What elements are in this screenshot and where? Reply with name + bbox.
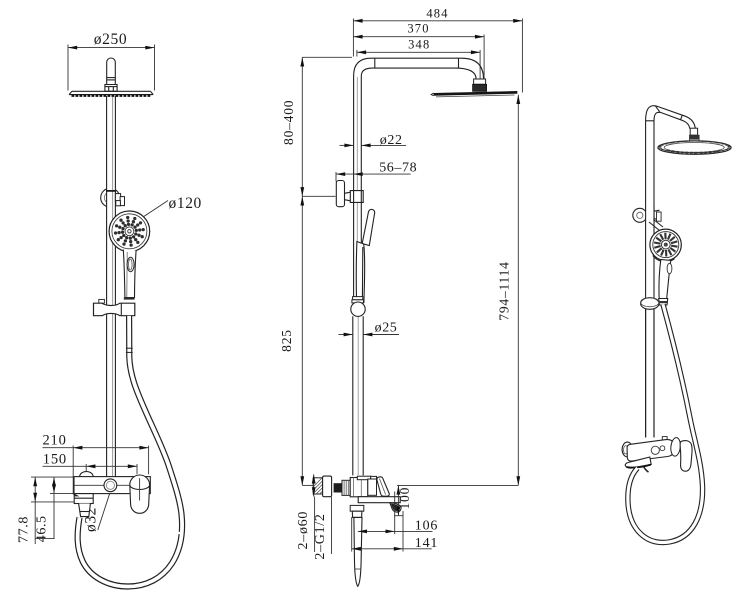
svg-text:ø120: ø120 xyxy=(169,195,202,212)
svg-text:106: 106 xyxy=(415,518,438,533)
svg-text:100: 100 xyxy=(397,487,412,510)
svg-text:56–78: 56–78 xyxy=(379,161,417,176)
svg-text:ø250: ø250 xyxy=(94,31,127,48)
svg-text:141: 141 xyxy=(415,536,438,551)
svg-text:2–G1/2: 2–G1/2 xyxy=(313,513,328,559)
svg-text:348: 348 xyxy=(408,38,430,52)
svg-text:2–ø60: 2–ø60 xyxy=(296,511,311,550)
svg-text:150: 150 xyxy=(43,452,67,468)
svg-text:ø22: ø22 xyxy=(380,133,403,148)
svg-text:825: 825 xyxy=(279,329,294,352)
svg-text:794–1114: 794–1114 xyxy=(497,261,512,320)
svg-text:484: 484 xyxy=(426,6,448,20)
svg-text:370: 370 xyxy=(407,22,429,36)
svg-text:210: 210 xyxy=(43,433,67,449)
svg-text:ø25: ø25 xyxy=(375,320,398,335)
svg-text:80–400: 80–400 xyxy=(281,100,296,145)
svg-text:77.8: 77.8 xyxy=(17,516,32,543)
